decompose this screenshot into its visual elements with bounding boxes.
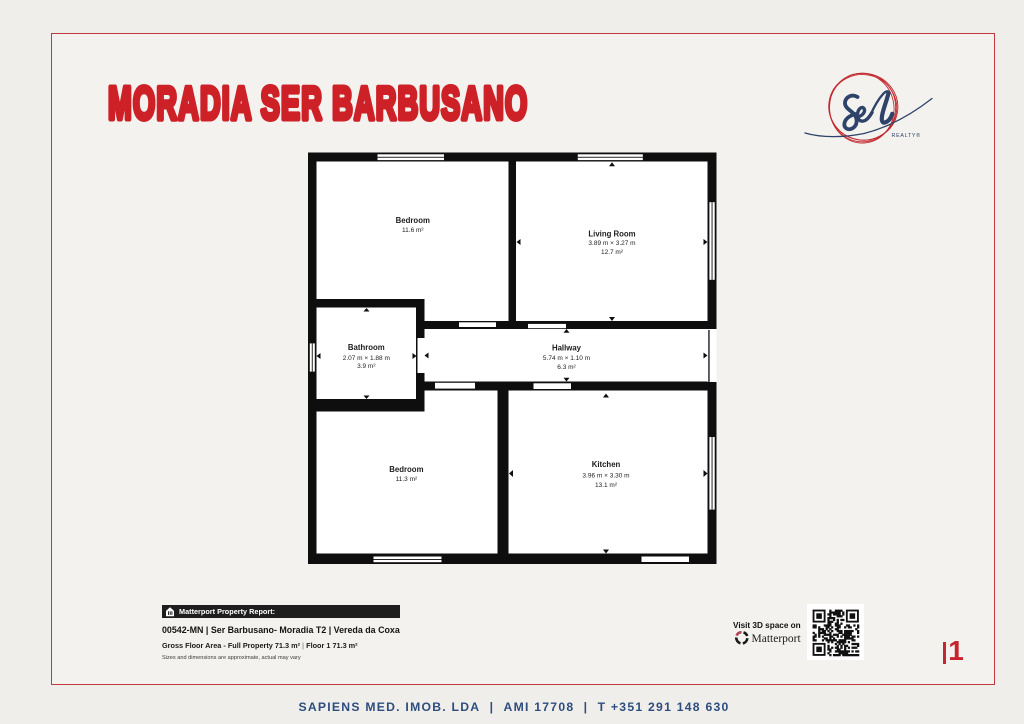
svg-text:REALTY®: REALTY® xyxy=(892,132,921,139)
svg-text:Living Room: Living Room xyxy=(588,230,635,239)
svg-text:Hallway: Hallway xyxy=(552,344,582,353)
svg-text:3.89 m × 3.27 m: 3.89 m × 3.27 m xyxy=(588,240,635,247)
svg-text:6.3 m²: 6.3 m² xyxy=(557,364,576,371)
svg-text:Bedroom: Bedroom xyxy=(389,465,423,474)
svg-text:Bedroom: Bedroom xyxy=(396,216,430,225)
svg-text:11.6 m²: 11.6 m² xyxy=(402,227,424,234)
svg-text:Bathroom: Bathroom xyxy=(348,343,385,352)
svg-text:3.9 m²: 3.9 m² xyxy=(357,363,376,370)
svg-text:2.07 m × 1.88 m: 2.07 m × 1.88 m xyxy=(343,355,390,362)
svg-text:MORADIA SER BARBUSANO: MORADIA SER BARBUSANO xyxy=(108,78,528,130)
svg-text:5.74 m × 1.10 m: 5.74 m × 1.10 m xyxy=(543,355,590,362)
svg-text:11.3 m²: 11.3 m² xyxy=(396,476,418,483)
svg-text:Matterport: Matterport xyxy=(751,633,801,645)
svg-text:12.7 m²: 12.7 m² xyxy=(601,249,624,256)
svg-text:13.1 m²: 13.1 m² xyxy=(595,482,618,489)
svg-text:Kitchen: Kitchen xyxy=(592,460,621,469)
svg-text:3.96 m × 3.30 m: 3.96 m × 3.30 m xyxy=(582,473,629,480)
